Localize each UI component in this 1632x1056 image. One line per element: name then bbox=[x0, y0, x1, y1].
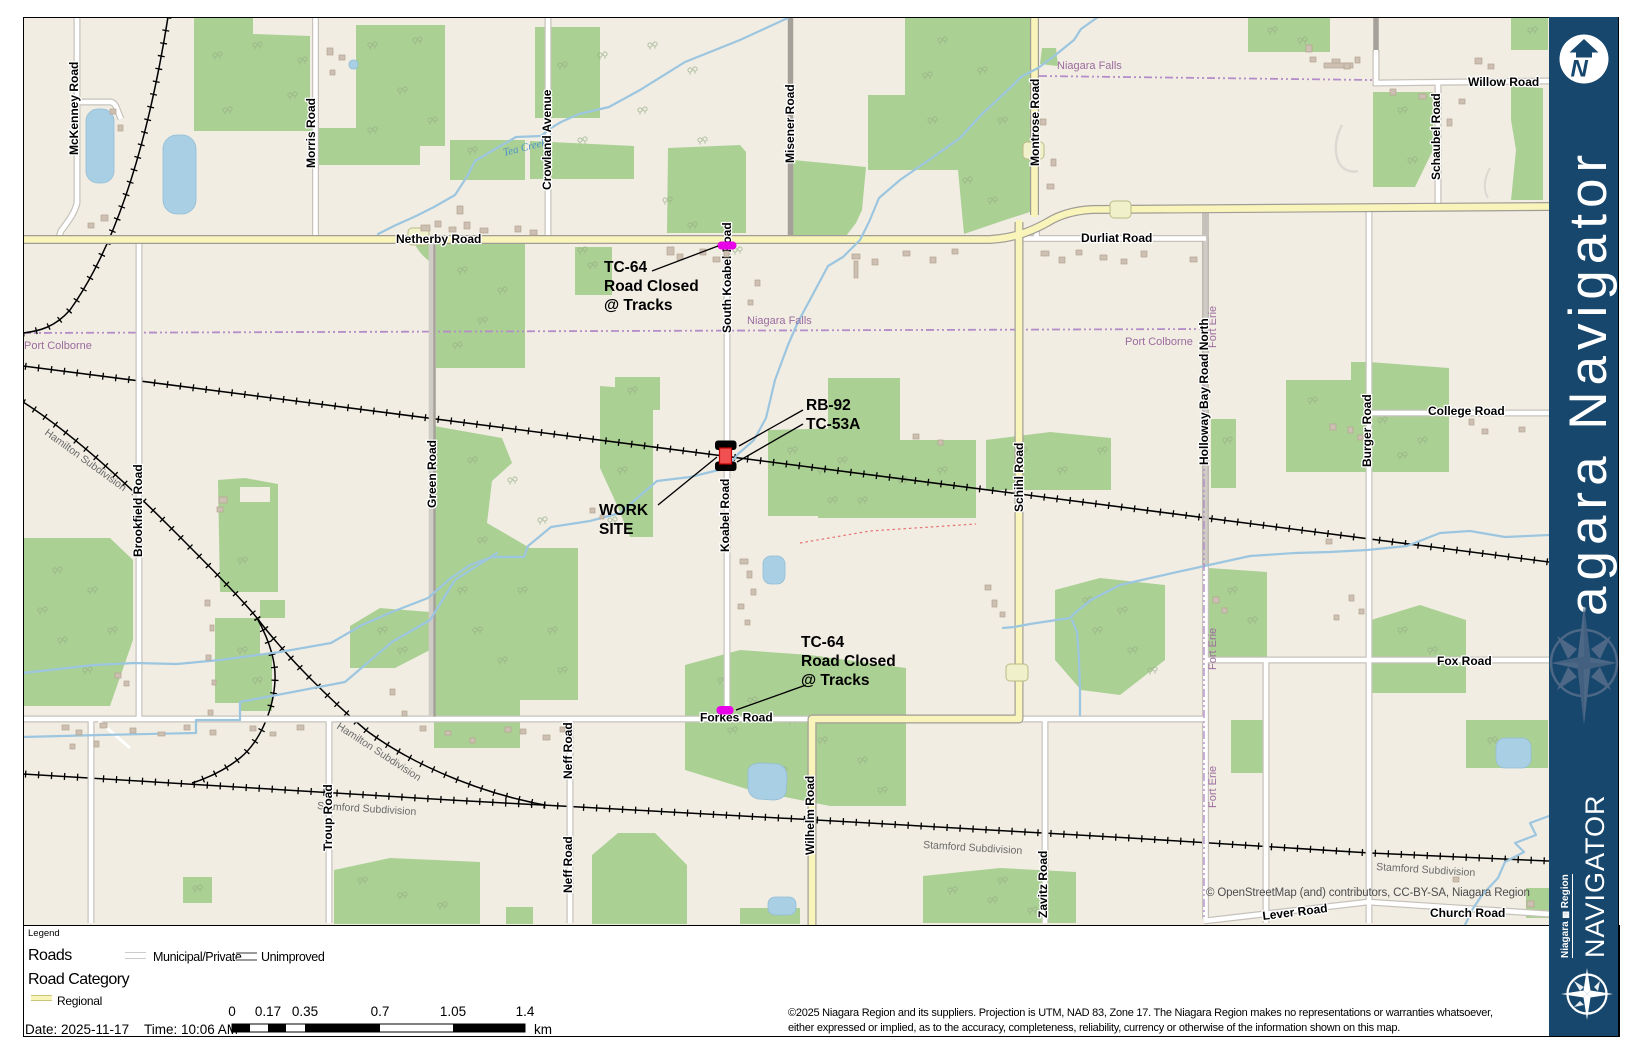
svg-text:1.05: 1.05 bbox=[440, 1004, 466, 1019]
svg-text:0.35: 0.35 bbox=[292, 1004, 318, 1019]
svg-text:1.4: 1.4 bbox=[516, 1004, 535, 1019]
svg-text:0.7: 0.7 bbox=[371, 1004, 390, 1019]
svg-text:N: N bbox=[1571, 56, 1589, 83]
svg-text:0: 0 bbox=[228, 1004, 236, 1019]
svg-text:km: km bbox=[534, 1022, 552, 1037]
svg-text:0.17: 0.17 bbox=[255, 1004, 281, 1019]
